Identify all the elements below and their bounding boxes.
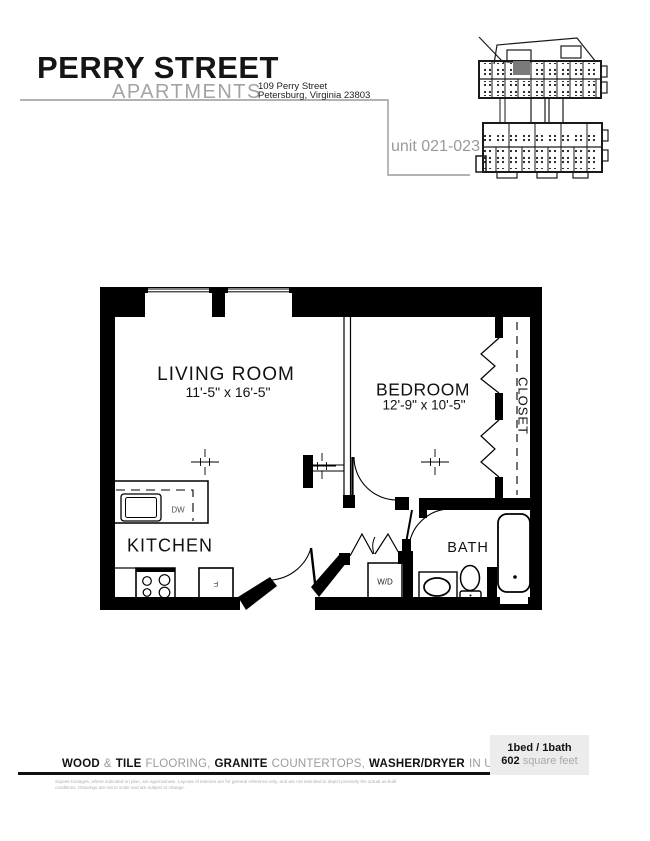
feature-countertops: COUNTERTOPS, bbox=[272, 758, 365, 770]
property-address: 109 Perry Street Petersburg, Virginia 23… bbox=[258, 83, 370, 101]
marker-bedroom bbox=[421, 449, 449, 475]
feature-amp: & bbox=[104, 758, 112, 770]
closet-label: CLOSET bbox=[516, 377, 531, 435]
feature-tile: TILE bbox=[116, 758, 142, 770]
feature-granite: GRANITE bbox=[215, 758, 268, 770]
feature-flooring: FLOORING, bbox=[145, 758, 210, 770]
kitchen-label: KITCHEN bbox=[127, 536, 213, 557]
bathtub bbox=[498, 514, 530, 592]
ceiling-markers bbox=[191, 449, 449, 479]
plan-drawing bbox=[0, 0, 650, 841]
unit-number-label: unit 021-023 bbox=[391, 138, 480, 156]
features-line: WOOD&TILEFLOORING,GRANITECOUNTERTOPS,WAS… bbox=[62, 758, 516, 770]
building-key-map bbox=[476, 37, 608, 178]
window-top-left bbox=[145, 288, 212, 317]
bedroom-door bbox=[353, 457, 398, 500]
bath-door bbox=[406, 509, 453, 546]
window-top-right bbox=[225, 288, 292, 317]
entry-door bbox=[272, 548, 316, 592]
bath-sink-basin bbox=[424, 578, 450, 596]
feature-washer-dryer: WASHER/DRYER bbox=[369, 758, 465, 770]
bath-fixtures bbox=[419, 514, 530, 604]
square-feet-unit: square feet bbox=[523, 755, 578, 767]
stove bbox=[113, 568, 175, 600]
unit-info-box: 1bed / 1bath 602 square feet bbox=[490, 735, 589, 775]
disclaimer-text: Square footages, where indicated on plan… bbox=[55, 780, 396, 792]
square-feet-text: 602 square feet bbox=[490, 755, 589, 767]
floorplan-page: { "header": { "title": "PERRY STREET", "… bbox=[0, 0, 650, 841]
square-feet-value: 602 bbox=[501, 755, 519, 767]
interior-partitions bbox=[344, 317, 351, 497]
beds-baths-text: 1bed / 1bath bbox=[490, 742, 589, 754]
washer-dryer-closet bbox=[350, 534, 402, 600]
footer-divider-line bbox=[18, 772, 490, 775]
bedroom-dimensions: 12'-9" x 10'-5" bbox=[382, 398, 465, 413]
toilet-bowl bbox=[461, 566, 480, 591]
disclaimer-line-2: conditions. Drawings are not to scale an… bbox=[55, 786, 396, 792]
feature-wood: WOOD bbox=[62, 758, 100, 770]
refrigerator-label: F bbox=[214, 580, 219, 589]
dishwasher-label: DW bbox=[171, 506, 184, 515]
washer-dryer-label: W/D bbox=[377, 578, 393, 587]
tub-drain bbox=[513, 575, 517, 579]
marker-living-room bbox=[191, 449, 219, 475]
unit-walls bbox=[100, 287, 542, 610]
page-subtitle: APARTMENTS bbox=[112, 81, 262, 104]
highlighted-unit bbox=[513, 61, 530, 75]
living-room-dimensions: 11'-5" x 16'-5" bbox=[185, 384, 270, 400]
address-line-2: Petersburg, Virginia 23803 bbox=[258, 92, 370, 101]
bath-label: BATH bbox=[447, 540, 489, 556]
living-room-label: LIVING ROOM bbox=[157, 364, 295, 386]
